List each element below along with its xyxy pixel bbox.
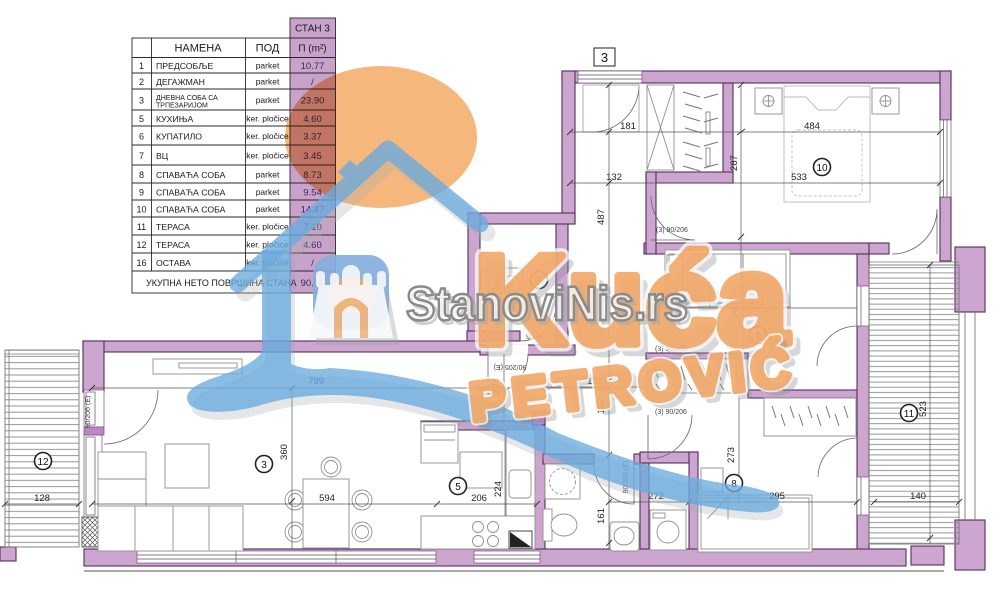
svg-text:ВЦ: ВЦ bbox=[156, 151, 169, 161]
svg-text:/: / bbox=[311, 258, 314, 269]
svg-text:П (m²): П (m²) bbox=[298, 44, 326, 55]
svg-text:ПРЕДСОБЉЕ: ПРЕДСОБЉЕ bbox=[156, 61, 213, 71]
svg-text:90/206 (Е): 90/206 (Е) bbox=[85, 396, 92, 429]
svg-text:128: 128 bbox=[34, 493, 50, 504]
svg-text:484: 484 bbox=[804, 121, 820, 132]
svg-text:161: 161 bbox=[596, 508, 607, 524]
svg-text:ker. pločice: ker. pločice bbox=[246, 222, 289, 232]
svg-text:ОСТАВА: ОСТАВА bbox=[156, 258, 191, 268]
svg-text:12: 12 bbox=[37, 457, 49, 468]
svg-text:ker. pločice: ker. pločice bbox=[246, 131, 289, 141]
svg-text:224: 224 bbox=[493, 481, 504, 497]
svg-text:parket: parket bbox=[256, 61, 280, 71]
svg-text:132: 132 bbox=[606, 172, 622, 183]
svg-text:parket: parket bbox=[256, 95, 280, 105]
svg-text:487: 487 bbox=[596, 209, 607, 225]
svg-text:ТРПЕЗАРИЈОМ: ТРПЕЗАРИЈОМ bbox=[156, 103, 208, 110]
svg-text:206: 206 bbox=[471, 493, 487, 504]
svg-text:6: 6 bbox=[139, 132, 144, 142]
svg-text:10.77: 10.77 bbox=[301, 61, 325, 72]
svg-text:533: 533 bbox=[791, 172, 807, 183]
svg-text:parket: parket bbox=[256, 187, 280, 197]
svg-text:140: 140 bbox=[910, 491, 926, 502]
svg-text:360: 360 bbox=[279, 444, 290, 460]
svg-text:10: 10 bbox=[136, 205, 146, 215]
svg-text:10: 10 bbox=[816, 163, 828, 174]
svg-text:parket: parket bbox=[256, 204, 280, 214]
svg-text:ПОД: ПОД bbox=[256, 43, 280, 55]
svg-text:16: 16 bbox=[136, 258, 146, 268]
svg-text:5: 5 bbox=[455, 482, 461, 493]
svg-text:СПАВАЋА СОБА: СПАВАЋА СОБА bbox=[156, 170, 226, 180]
svg-text:523: 523 bbox=[918, 401, 929, 417]
svg-text:181: 181 bbox=[620, 121, 636, 132]
svg-text:parket: parket bbox=[256, 170, 280, 180]
svg-text:ТЕРАСА: ТЕРАСА bbox=[156, 222, 190, 232]
svg-text:КУПАТИЛО: КУПАТИЛО bbox=[156, 132, 202, 142]
svg-text:СПАВАЋА СОБА: СПАВАЋА СОБА bbox=[156, 188, 226, 198]
svg-text:3: 3 bbox=[261, 460, 267, 471]
svg-text:ker. pločice: ker. pločice bbox=[246, 114, 289, 124]
svg-text:12: 12 bbox=[136, 240, 146, 250]
svg-text:КУХИЊА: КУХИЊА bbox=[156, 114, 193, 124]
svg-text:СТАН 3: СТАН 3 bbox=[295, 24, 330, 35]
svg-text:3: 3 bbox=[601, 50, 608, 65]
svg-text:ДЕГАЖМАН: ДЕГАЖМАН bbox=[156, 77, 205, 87]
svg-text:StanoviNis.rs: StanoviNis.rs bbox=[406, 278, 688, 331]
svg-text:287: 287 bbox=[729, 155, 740, 171]
svg-text:3: 3 bbox=[139, 96, 144, 106]
svg-text:8: 8 bbox=[139, 170, 144, 180]
svg-text:НАМЕНА: НАМЕНА bbox=[174, 43, 222, 55]
svg-text:7: 7 bbox=[139, 151, 144, 161]
svg-text:2: 2 bbox=[139, 77, 144, 87]
svg-text:ДНЕВНА СОБА СА: ДНЕВНА СОБА СА bbox=[156, 95, 218, 102]
svg-text:594: 594 bbox=[319, 493, 335, 504]
svg-text:11: 11 bbox=[904, 409, 915, 420]
svg-text:parket: parket bbox=[256, 77, 280, 87]
svg-text:273: 273 bbox=[726, 447, 737, 463]
svg-text:СПАВАЋА СОБА: СПАВАЋА СОБА bbox=[156, 205, 226, 215]
svg-text:9: 9 bbox=[139, 188, 144, 198]
svg-text:5: 5 bbox=[139, 114, 144, 124]
svg-text:ker. pločice: ker. pločice bbox=[246, 151, 289, 161]
svg-text:ТЕРАСА: ТЕРАСА bbox=[156, 240, 190, 250]
svg-text:1: 1 bbox=[139, 61, 144, 71]
svg-text:11: 11 bbox=[137, 222, 146, 232]
